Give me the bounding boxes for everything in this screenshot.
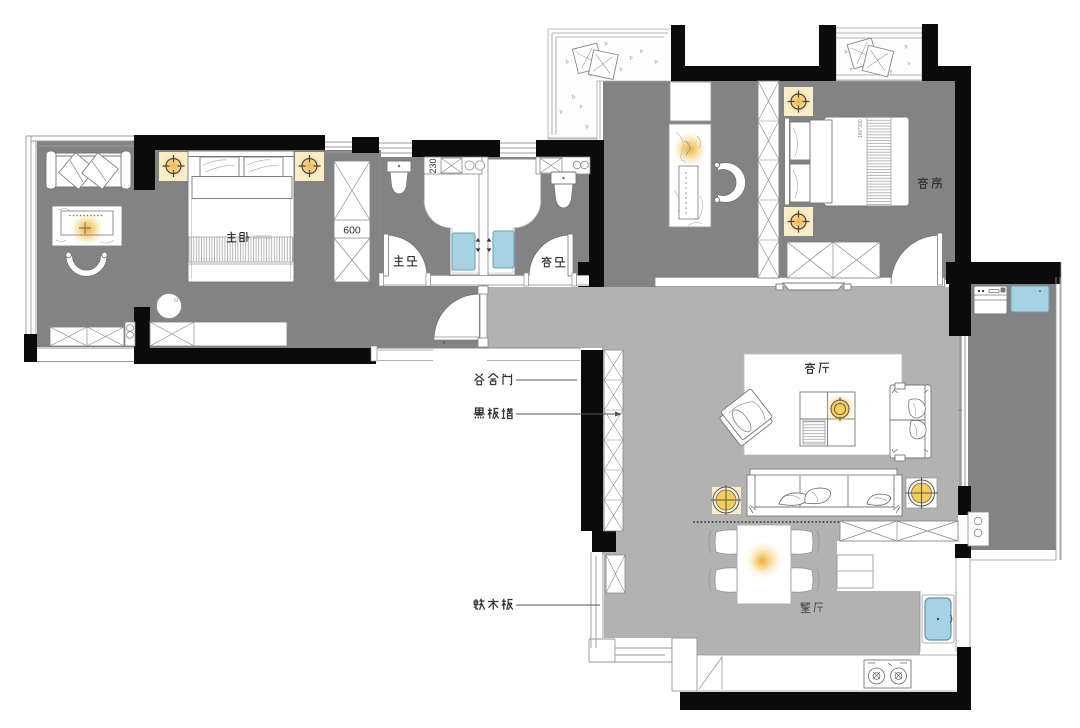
svg-text:600: 600 xyxy=(343,225,361,237)
svg-text:230: 230 xyxy=(428,158,438,173)
svg-text:180*200: 180*200 xyxy=(253,235,272,241)
svg-text:180*200: 180*200 xyxy=(858,119,864,138)
